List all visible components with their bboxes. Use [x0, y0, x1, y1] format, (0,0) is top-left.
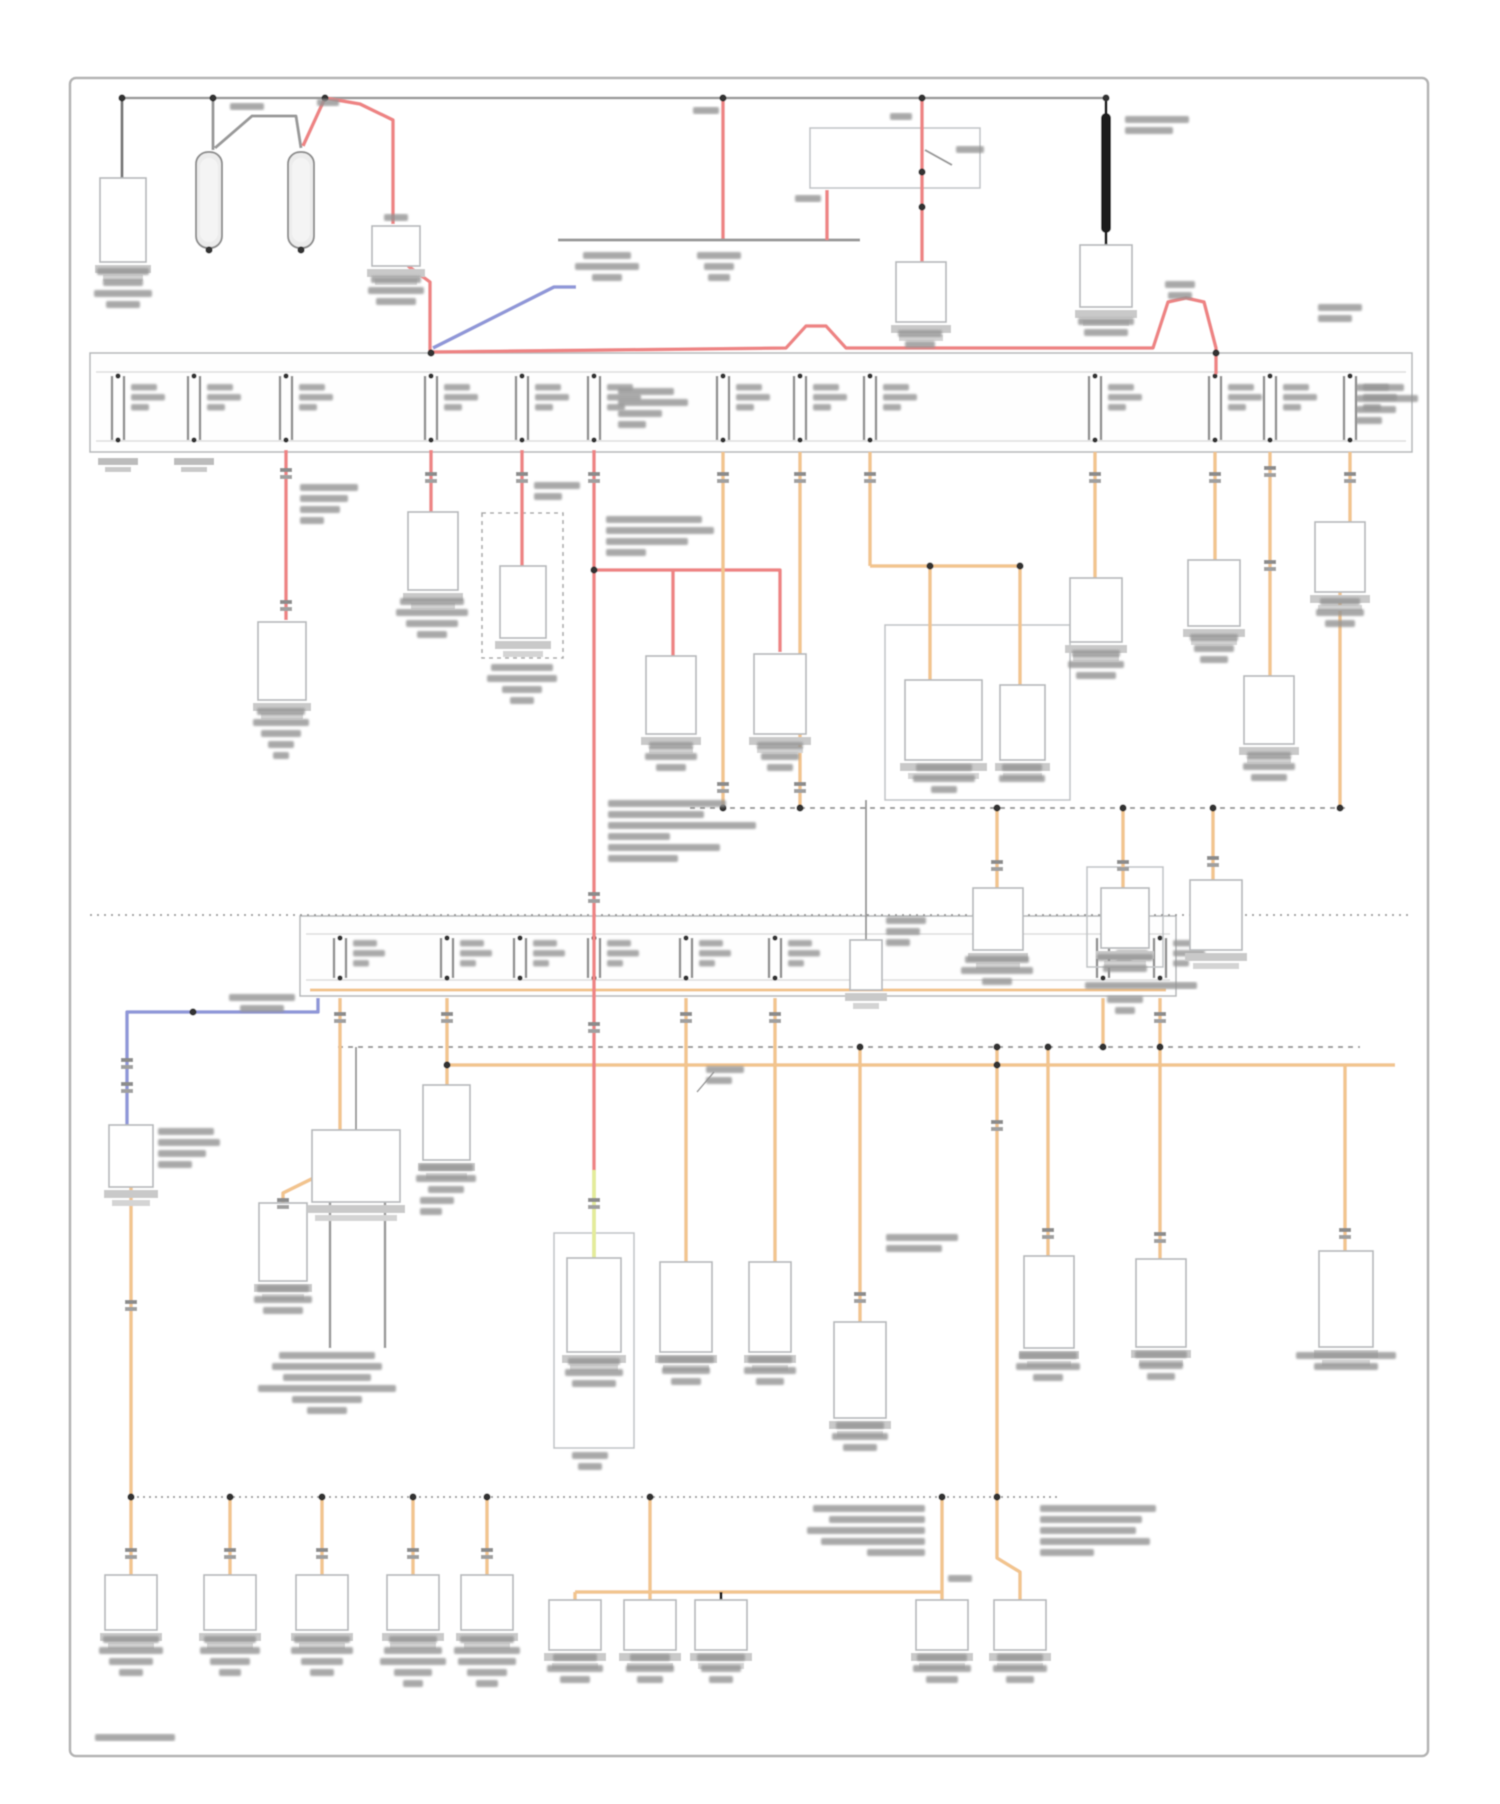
junction-dot [993, 1043, 1000, 1050]
comp-b16 [845, 940, 887, 1009]
footer-text [95, 1734, 175, 1741]
instrument-panel-fuse-block-row [300, 916, 1205, 996]
junction-dot [427, 349, 434, 356]
junction-dot [409, 1493, 416, 1500]
comp-c-right [1310, 522, 1370, 611]
power-distribution-diagram-svg [0, 0, 1500, 1804]
g2-wide-bar [1085, 982, 1197, 989]
junction-dot [646, 1493, 653, 1500]
battery-main [1075, 245, 1137, 326]
junction-dot [297, 246, 304, 253]
junction-dot [918, 168, 925, 175]
junction-dot [118, 94, 125, 101]
wire942-tag [948, 1575, 972, 1582]
junction-dot [483, 1493, 490, 1500]
comp-b14 [307, 1130, 405, 1221]
junction-dot [1119, 804, 1126, 811]
underhood-fuse-block-row [90, 353, 1412, 452]
junction-dot [796, 804, 803, 811]
junction-pre-label [384, 214, 408, 221]
battery-left [95, 178, 151, 281]
junction-dot [918, 203, 925, 210]
junction-dot [993, 1061, 1000, 1068]
comp-b3 [891, 262, 951, 341]
center-drop-tag [693, 107, 719, 114]
junction-dot [127, 1493, 134, 1500]
comp-b9c [1183, 560, 1245, 645]
junction-dot [993, 804, 1000, 811]
tall-module-label [565, 1358, 623, 1387]
junction-dot [318, 1493, 325, 1500]
junction-dot [209, 94, 216, 101]
comp-b7a [641, 656, 701, 753]
bridge-tag [230, 103, 264, 110]
junction-dot [1016, 562, 1023, 569]
comp-b6 [403, 512, 463, 609]
junction-dot [993, 1493, 1000, 1500]
drop3-tag [890, 113, 912, 120]
junction-dot [1044, 1043, 1051, 1050]
junction-dot [1212, 349, 1219, 356]
junction-dot [926, 562, 933, 569]
comp-tall-d [1239, 676, 1299, 763]
gen-wire-tag [317, 99, 339, 106]
comp-b5 [253, 622, 311, 719]
comp-b8 [1065, 578, 1127, 661]
drop2-tag [795, 195, 821, 202]
comp-b7b [749, 654, 811, 753]
resistor-tag [956, 146, 984, 153]
junction-label [368, 276, 424, 305]
junction-dot [938, 1493, 945, 1500]
comp-left-col [104, 1125, 158, 1206]
junction-dot [918, 94, 925, 101]
fusible-link-1 [196, 152, 222, 248]
junction-dot [226, 1493, 233, 1500]
junction-dot [205, 246, 212, 253]
junction-dot [1102, 94, 1109, 101]
fusible-link-2 [288, 152, 314, 248]
comp-g3 [1185, 880, 1247, 969]
junction-dot [1336, 804, 1343, 811]
junction-dot [719, 94, 726, 101]
wiring-diagram-page [0, 0, 1500, 1804]
comp-b8-label [1068, 650, 1124, 679]
junction-dot [1156, 1043, 1163, 1050]
junction-dot [443, 1061, 450, 1068]
ignition-inner [495, 566, 551, 657]
junction-dot [590, 566, 597, 573]
junction-dot [856, 1043, 863, 1050]
junction-dot [189, 1008, 196, 1015]
junction-dot [1209, 804, 1216, 811]
junction-dot [1099, 1043, 1106, 1050]
